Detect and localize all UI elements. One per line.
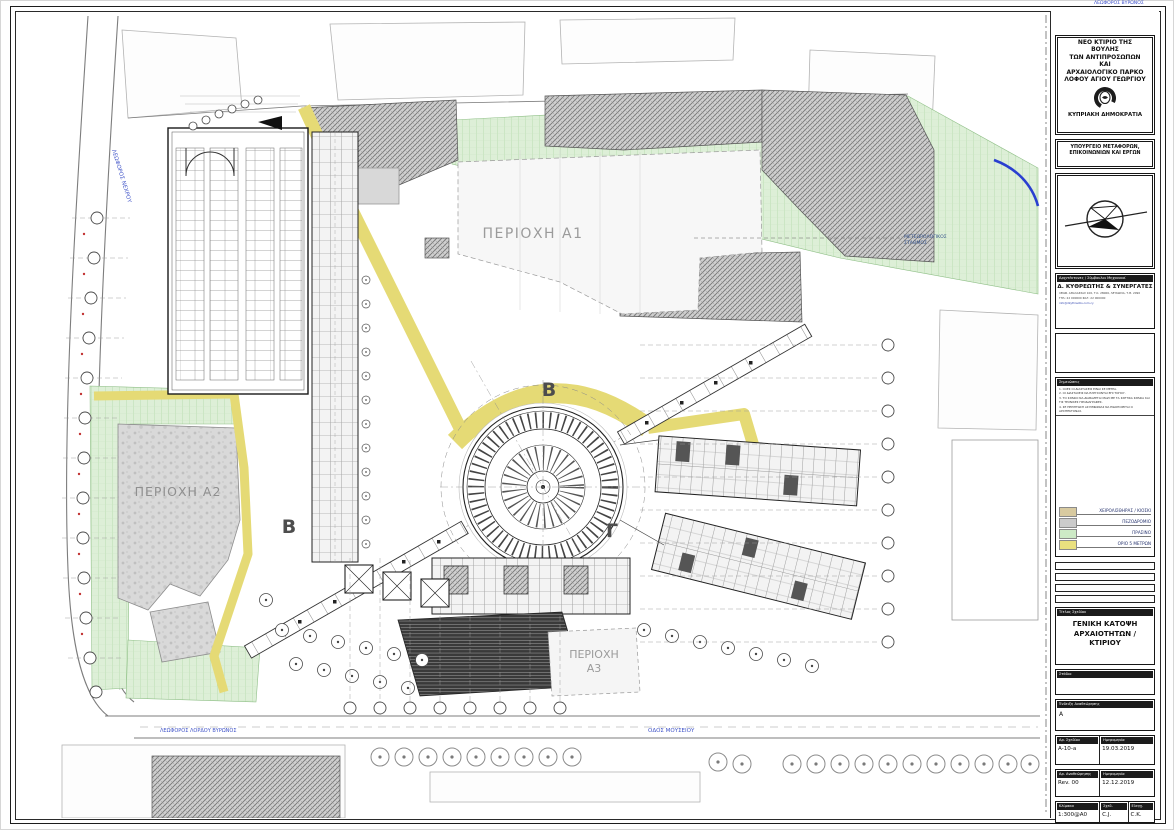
legend-label: ΠΡΑΣΙΝΟ — [1077, 530, 1151, 537]
legend-label: ΟΡΙΟ 5 ΜΕΤΡΩΝ — [1077, 541, 1151, 548]
revision-index-box: Ένδειξη Αναθεώρησης A — [1055, 699, 1155, 731]
scale-value: 1:300@A0 — [1056, 811, 1099, 819]
street-label-left: ΛΕΩΦΟΡΟΣ ΝΕΧΡΟΥ — [110, 149, 132, 204]
legend-swatch-green — [1059, 529, 1077, 539]
street-label-bottom-left: ΛΕΩΦΟΡΟΣ ΛΟΡΔΟΥ ΒΥΡΩΝΟΣ — [160, 728, 237, 734]
legend-label: ΠΕΖΟΔΡΟΜΙΟ — [1077, 519, 1151, 526]
co-consultant-box — [1055, 333, 1155, 373]
architect-box: Αρχιτέκτονες / Σύμβουλοι Μηχανικοί Δ. ΚΥ… — [1055, 273, 1155, 329]
legend-row: ΧΕΙΡΟΛΙΣΘΗΡΑΣ / ΚΙΟΣΚΙ — [1059, 506, 1151, 517]
architect-header: Αρχιτέκτονες / Σύμβουλοι Μηχανικοί — [1057, 275, 1153, 282]
notes-legend-box: Σημειώσεις 1. ΟΛΕΣ ΟΙ ΔΙΑΣΤΑΣΕΙΣ ΕΙΝΑΙ Σ… — [1055, 377, 1155, 557]
drawing-no-header: Αρ. Σχεδίου — [1057, 737, 1098, 744]
legend-swatch-5m-limit — [1059, 540, 1077, 550]
drawing-title-line: ΚΤΙΡΙΟΥ — [1056, 639, 1154, 649]
revision-strip — [1055, 573, 1155, 581]
revision-strip — [1055, 562, 1155, 570]
project-title-line: ΚΑΙ — [1056, 61, 1154, 68]
stage-box: Στάδιο — [1055, 669, 1155, 695]
notes-header: Σημειώσεις — [1057, 379, 1153, 386]
revision-row: Αρ. Αναθεώρησης Rev. 00 Ημερομηνία 12.12… — [1055, 769, 1155, 797]
area-a3-label-line2: Α3 — [587, 662, 602, 675]
revision-index-header: Ένδειξη Αναθεώρησης — [1057, 701, 1153, 708]
street-trees — [371, 748, 1039, 773]
north-arrow-compass-icon — [1057, 174, 1153, 264]
legend-row: ΟΡΙΟ 5 ΜΕΤΡΩΝ — [1059, 539, 1151, 550]
architect-name: Δ. ΚΥΘΡΕΩΤΗΣ & ΣΥΝΕΡΓΑΤΕΣ — [1056, 284, 1154, 290]
met-station-label-line2: ΣΤΑΘΜΟΣ — [904, 240, 927, 246]
section-marker-b-top: B — [542, 379, 556, 401]
scale-row: Κλίμακα 1:300@A0 Σχεδ. C.J. Ελεγχ. C.K. — [1055, 801, 1155, 823]
top-edge-street-label: ΛΕΩΦΟΡΟΣ ΒΥΡΩΝΟΣ — [1094, 1, 1144, 6]
revision-value: Rev. 00 — [1056, 779, 1099, 787]
street-label-bottom: ΟΔΟΣ ΜΟΥΣΕΙΟΥ — [648, 728, 695, 734]
section-marker-gamma: Γ — [606, 520, 618, 542]
legend-label: ΧΕΙΡΟΛΙΣΘΗΡΑΣ / ΚΙΟΣΚΙ — [1077, 508, 1151, 515]
south-rooms-band — [432, 558, 630, 614]
project-title-line: ΛΟΦΟΥ ΑΓΙΟΥ ΓΕΩΡΓΙΟΥ — [1056, 76, 1154, 83]
section-marker-b-left: B — [282, 516, 296, 538]
state-label: ΚΥΠΡΙΑΚΗ ΔΗΜΟΚΡΑΤΙΑ — [1056, 112, 1154, 119]
revision-index-value: A — [1056, 709, 1154, 720]
drawing-date-header: Ημερομηνία — [1101, 737, 1153, 744]
revision-strip — [1055, 584, 1155, 592]
drawn-by-header: Σχεδ. — [1101, 803, 1126, 810]
legend-swatch-kiosk — [1059, 507, 1077, 517]
cyprus-coat-of-arms-icon — [1093, 85, 1117, 111]
legend-swatch-sidewalk — [1059, 518, 1077, 528]
drawing-title-line: ΓΕΝΙΚΗ ΚΑΤΟΨΗ — [1056, 620, 1154, 630]
architect-address: ΛΕΩΦ. ΑΘΑΛΑΣΣΑΣ 100, Τ.Κ. 28066, ΛΕΥΚΩΣΙ… — [1056, 290, 1154, 295]
project-title-box: ΝΕΟ ΚΤΙΡΙΟ ΤΗΣ ΒΟΥΛΗΣ ΤΩΝ ΑΝΤΙΠΡΟΣΩΠΩΝ Κ… — [1055, 35, 1155, 135]
drawing-sheet: ΛΕΩΦΟΡΟΣ ΒΥΡΩΝΟΣ — [0, 0, 1174, 830]
site-plan-drawing: ΠΕΡΙΟΧΗ A1 ΠΕΡΙΟΧΗ A2 ΠΕΡΙΟΧΗ Α3 B B Γ Μ… — [15, 11, 1052, 818]
area-a3-label-line1: ΠΕΡΙΟΧΗ — [569, 648, 619, 661]
revision-date-header: Ημερομηνία — [1101, 771, 1153, 778]
checked-by-value: C.K. — [1129, 811, 1154, 819]
project-title-line: ΤΩΝ ΑΝΤΙΠΡΟΣΩΠΩΝ — [1056, 54, 1154, 61]
scale-header: Κλίμακα — [1057, 803, 1098, 810]
ministry-line: ΕΠΙΚΟΙΝΩΝΙΩΝ ΚΑΙ ΕΡΓΩΝ — [1056, 151, 1154, 157]
east-wing-upper — [655, 436, 860, 506]
project-title-line: ΝΕΟ ΚΤΙΡΙΟ ΤΗΣ — [1056, 39, 1154, 46]
drawing-title-header: Τίτλος Σχεδίου — [1057, 609, 1153, 616]
drawn-by-value: C.J. — [1100, 811, 1127, 819]
checked-by-header: Ελεγχ. — [1130, 803, 1153, 810]
project-title-line: ΒΟΥΛΗΣ — [1056, 46, 1154, 53]
drawing-date-value: 19.03.2019 — [1100, 745, 1154, 753]
area-a2-label: ΠΕΡΙΟΧΗ A2 — [135, 484, 222, 499]
drawing-number-row: Αρ. Σχεδίου A-10-a Ημερομηνία 19.03.2019 — [1055, 735, 1155, 765]
parking-garage — [168, 96, 308, 394]
architect-email: info@dkythreotis.com.cy — [1056, 300, 1154, 305]
project-title-line: ΑΡΧΑΙΟΛΟΓΙΚΟ ΠΑΡΚΟ — [1056, 69, 1154, 76]
revision-strip — [1055, 595, 1155, 603]
revision-header: Αρ. Αναθεώρησης — [1057, 771, 1098, 778]
note-item: 4. ΣΕ ΠΕΡΙΠΤΩΣΗ ΑΣΥΜΦΩΝΙΑΣ ΝΑ ΕΙΔΟΠΟΙΕΙΤ… — [1056, 405, 1154, 414]
legend: ΧΕΙΡΟΛΙΣΘΗΡΑΣ / ΚΙΟΣΚΙ ΠΕΖΟΔΡΟΜΙΟ ΠΡΑΣΙΝ… — [1059, 506, 1151, 550]
area-a1-label: ΠΕΡΙΟΧΗ A1 — [482, 226, 583, 242]
legend-row: ΠΡΑΣΙΝΟ — [1059, 528, 1151, 539]
drawing-no-value: A-10-a — [1056, 745, 1099, 753]
drawing-title-box: Τίτλος Σχεδίου ΓΕΝΙΚΗ ΚΑΤΟΨΗ ΑΡΧΑΙΟΤΗΤΩΝ… — [1055, 607, 1155, 665]
met-station-label-line1: ΜΕΤΕΩΡΟΛΟΓΙΚΟΣ — [904, 234, 947, 240]
drawing-title-line: ΑΡΧΑΙΟΤΗΤΩΝ / — [1056, 630, 1154, 640]
legend-row: ΠΕΖΟΔΡΟΜΙΟ — [1059, 517, 1151, 528]
title-block: ΝΕΟ ΚΤΙΡΙΟ ΤΗΣ ΒΟΥΛΗΣ ΤΩΝ ΑΝΤΙΠΡΟΣΩΠΩΝ Κ… — [1050, 11, 1159, 818]
ministry-box: ΥΠΟΥΡΓΕΙΟ ΜΕΤΑΦΟΡΩΝ, ΕΠΙΚΟΙΝΩΝΙΩΝ ΚΑΙ ΕΡ… — [1055, 139, 1155, 169]
stage-header: Στάδιο — [1057, 671, 1153, 678]
revision-date-value: 12.12.2019 — [1100, 779, 1154, 787]
note-item: 3. ΤΟ ΣΧΕΔΙΟ ΝΑ ΔΙΑΒΑΖΕΤΑΙ ΜΑΖΙ ΜΕ ΤΑ ΣΧ… — [1056, 396, 1154, 405]
north-arrow-box — [1055, 173, 1155, 269]
